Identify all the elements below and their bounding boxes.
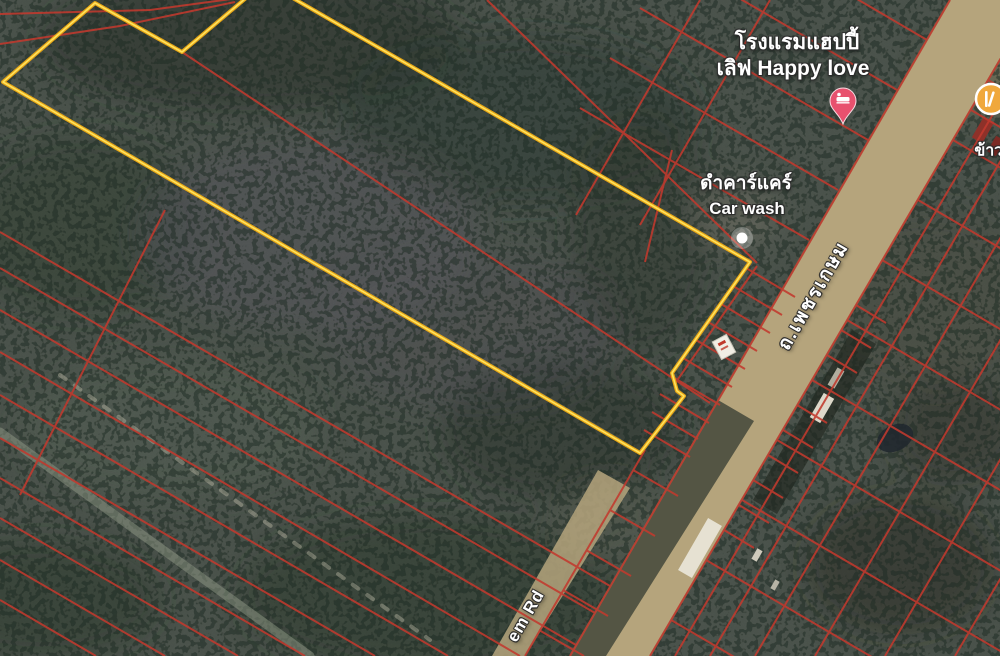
shop-label-fragment[interactable]: ข้าวต — [974, 144, 1000, 161]
satellite-canvas — [0, 0, 1000, 656]
restaurant-poi-icon[interactable] — [976, 84, 1000, 114]
carwash-label-thai[interactable]: ดำคาร์แคร์ — [700, 174, 792, 194]
hotel-label-line1[interactable]: โรงแรมแฮปปี้ — [735, 32, 859, 54]
poi-dot[interactable] — [731, 227, 753, 249]
carwash-label-en[interactable]: Car wash — [709, 200, 785, 218]
satellite-map: โรงแรมแฮปปี้ เลิฟ Happy love ดำคาร์แคร์ … — [0, 0, 1000, 656]
hotel-label-line2[interactable]: เลิฟ Happy love — [717, 58, 870, 80]
